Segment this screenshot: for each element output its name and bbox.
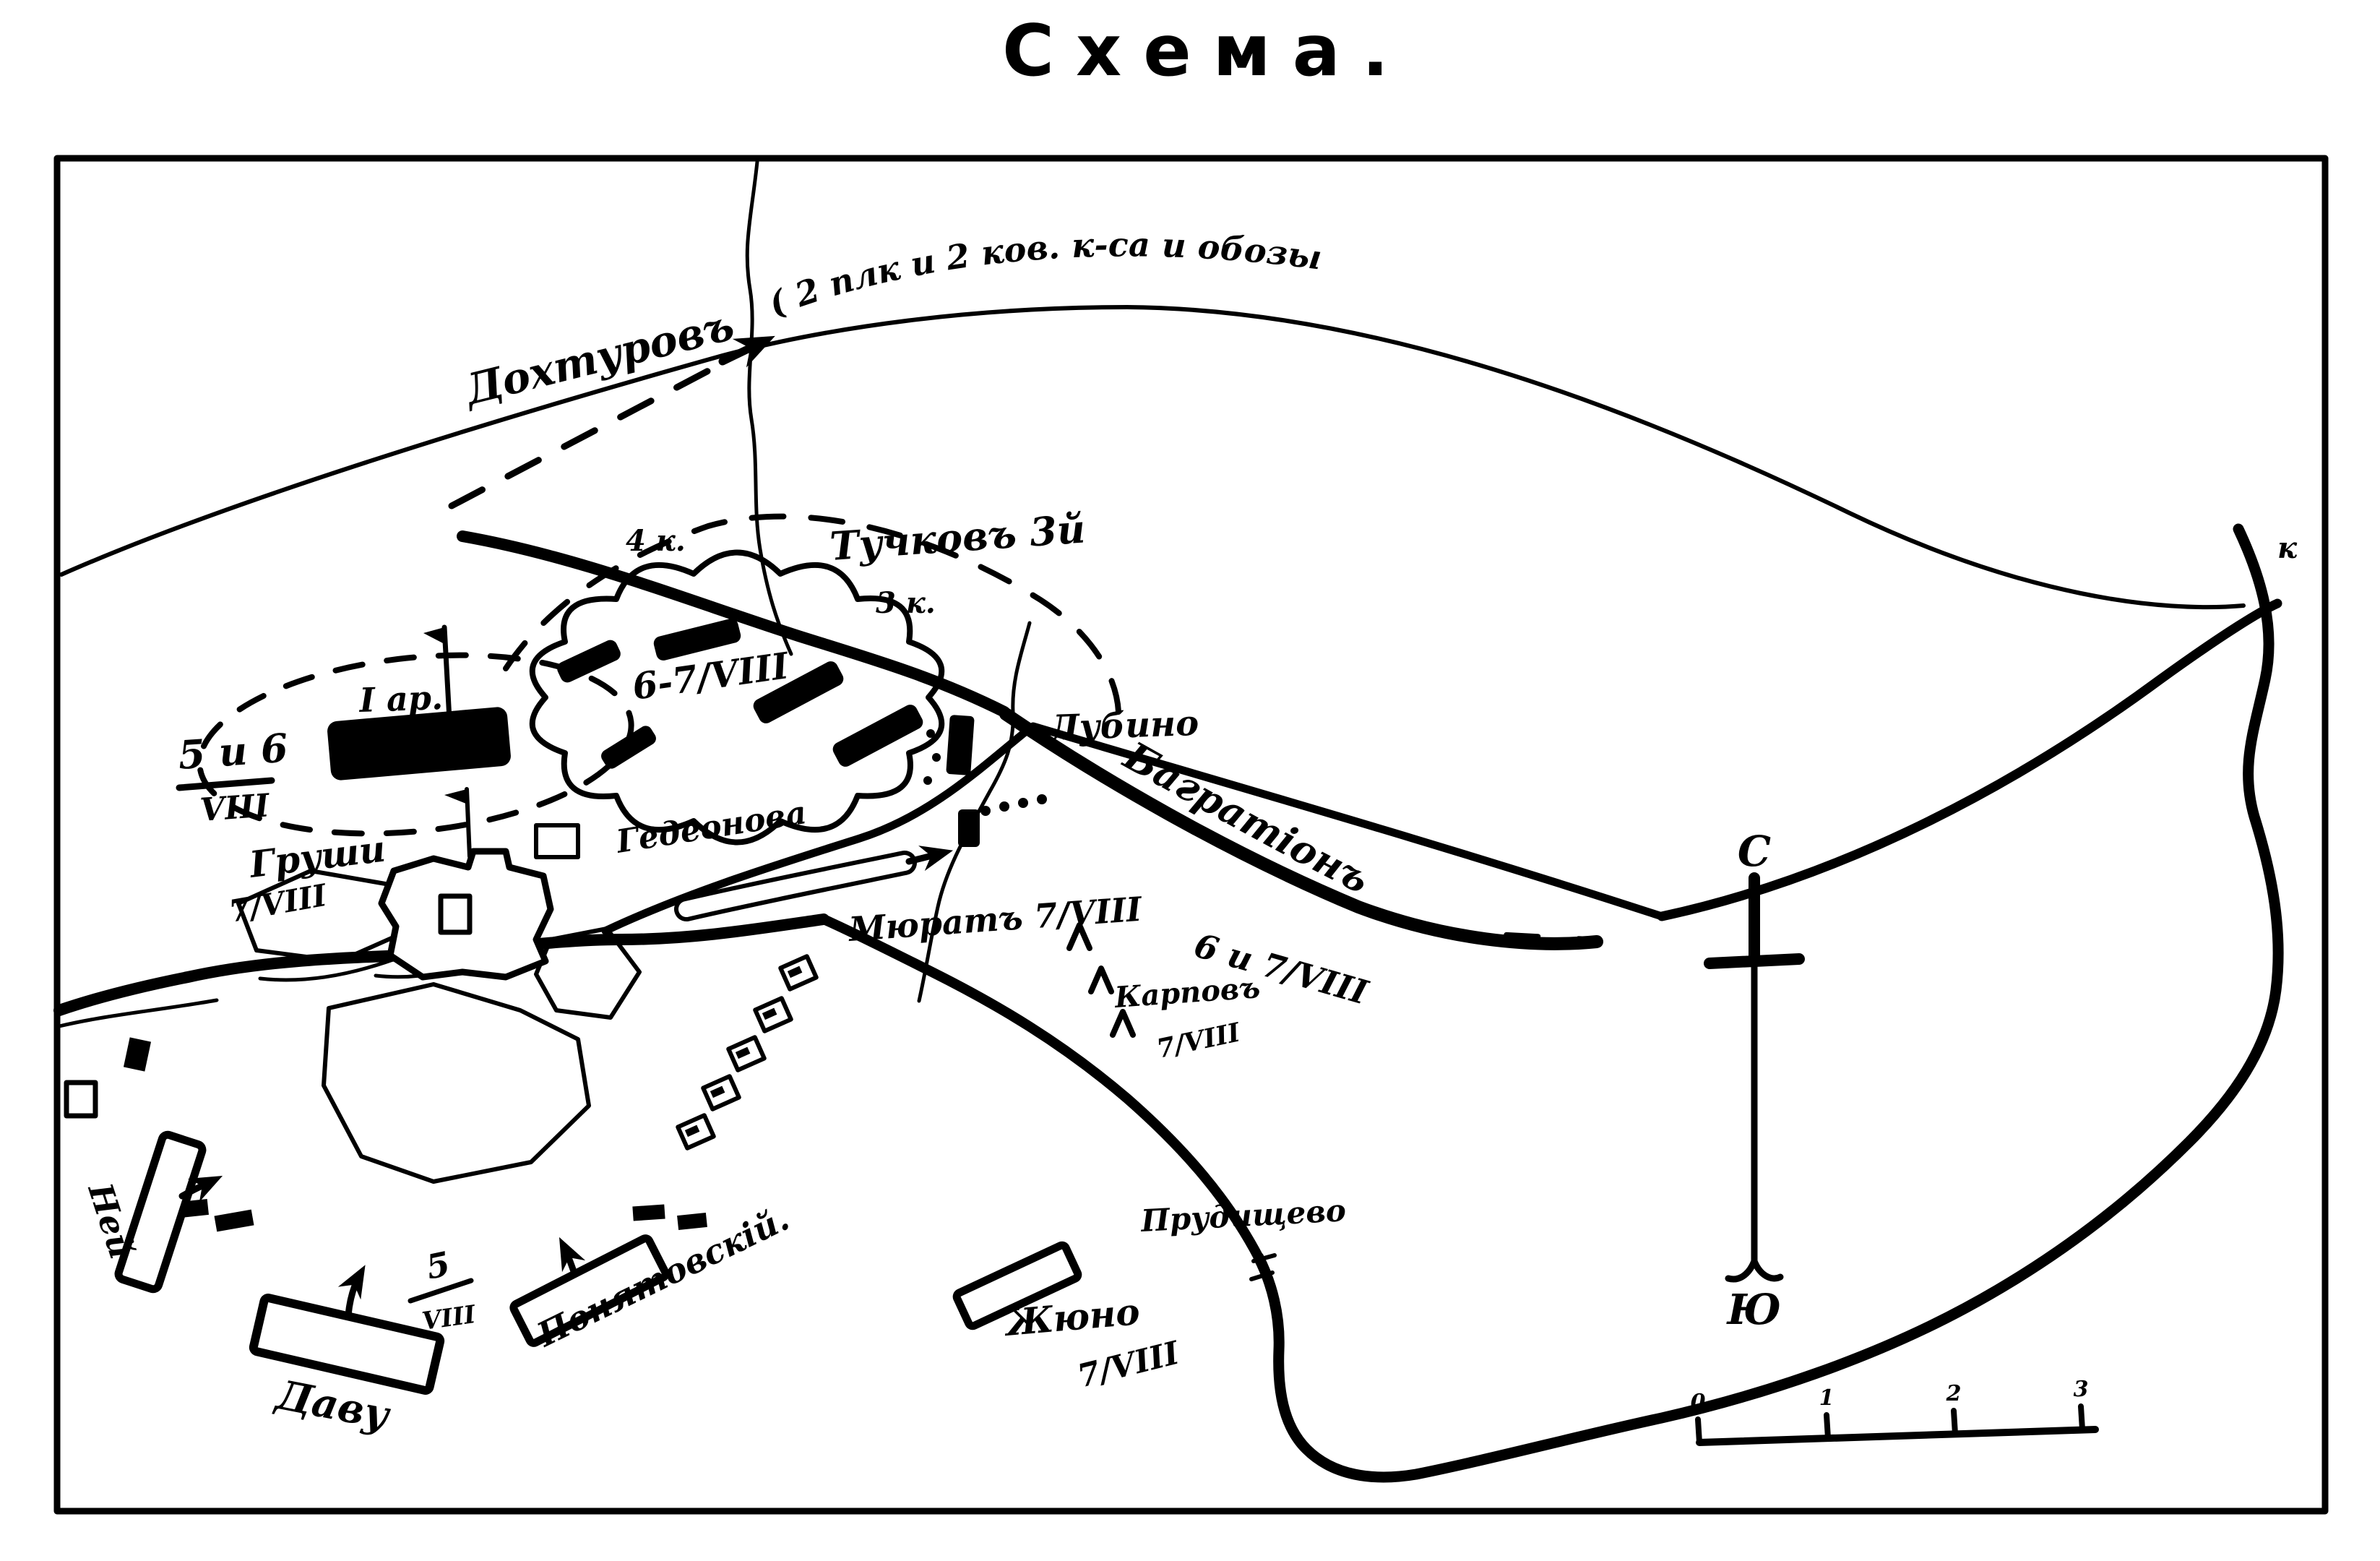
label-army1: I ар. xyxy=(358,678,444,720)
label-davout-num: 5 xyxy=(423,1244,454,1286)
roads xyxy=(462,536,2277,944)
north-stream xyxy=(747,162,791,654)
label-pos56-den: VIII xyxy=(199,787,272,829)
label-karpov: Карповъ xyxy=(1113,971,1261,1015)
pos56-fraction-bar xyxy=(179,780,272,788)
village-block xyxy=(536,825,578,857)
dokhturov-arc xyxy=(61,307,2243,607)
battle-map: С Ю 0 1 2 3 ( 2 плк и 2 ков. к-са и обоз… xyxy=(0,0,2380,1561)
scale-line xyxy=(1699,1429,2095,1442)
lubino-rect-north xyxy=(946,715,975,775)
rearguard-flag-pole xyxy=(444,627,449,719)
compass-north-label: С xyxy=(1738,827,1771,876)
label-lubino: Лубино xyxy=(1045,703,1199,749)
town-block-1 xyxy=(124,1037,151,1071)
label-karpov-date-lower: 7/VIII xyxy=(1154,1017,1243,1065)
pontoon-bar-3 xyxy=(632,1204,665,1221)
citadel-flag xyxy=(444,789,467,804)
label-gedeonovo: Гедеонова xyxy=(613,794,809,861)
scale-bar: 0 1 2 3 xyxy=(1691,1377,2095,1442)
citadel-flag-pole xyxy=(467,789,470,856)
label-prudishchevo: Прудищево xyxy=(1139,1192,1347,1239)
pontoon-bar-2 xyxy=(214,1210,254,1232)
map-sheet: Схема. xyxy=(0,0,2380,1561)
compass-south-label: Ю xyxy=(1726,1285,1782,1334)
label-edge-k: к xyxy=(2277,531,2298,565)
label-tuchkov: Тучковъ 3й xyxy=(828,505,1087,569)
scale-tick-3: 3 xyxy=(2074,1377,2089,1402)
scale-tick-0: 0 xyxy=(1691,1390,1706,1415)
label-corps3: 3 к. xyxy=(876,586,936,620)
citadel-keep xyxy=(441,896,470,932)
label-junot-date: 7/VIII xyxy=(1074,1334,1183,1395)
scale-tick-2: 2 xyxy=(1946,1381,1962,1406)
compass-fork xyxy=(1728,1261,1780,1279)
davout-arrow xyxy=(348,1273,361,1315)
dnieper-east xyxy=(1259,529,2278,1477)
dnieper-east-texture xyxy=(1259,529,2278,1477)
label-corps4: 4 к. xyxy=(626,524,686,558)
poniatowski-arrow xyxy=(564,1246,574,1273)
pontoon-bar-4 xyxy=(677,1213,707,1230)
label-dokhturov: Дохтуровъ xyxy=(458,301,738,416)
scale-tick-1: 1 xyxy=(1819,1385,1834,1411)
city-hatched-south xyxy=(324,984,589,1182)
label-murat: Мюратъ 7/VIII xyxy=(846,890,1144,949)
label-grouchy-date: 7/VIII xyxy=(226,877,330,929)
lubino-rect-south xyxy=(958,809,980,847)
picket-dots xyxy=(980,794,1047,816)
label-grouchy: Груши xyxy=(246,827,387,886)
battery-row xyxy=(678,956,816,1148)
rearguard-flag xyxy=(423,627,444,643)
label-pos56-num: 5 и 6 xyxy=(176,725,289,778)
town-block-2 xyxy=(66,1083,95,1116)
murat-arrow-head xyxy=(909,853,944,861)
label-davout-den: VIII xyxy=(421,1300,478,1336)
